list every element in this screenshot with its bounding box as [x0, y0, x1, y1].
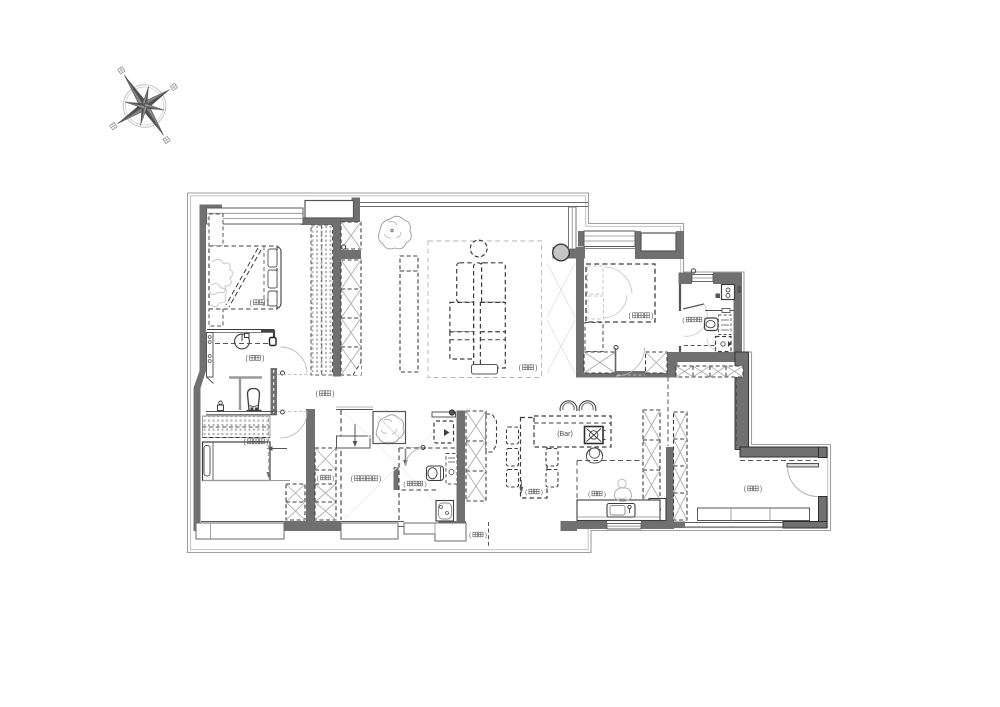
svg-text:): ) — [703, 317, 705, 324]
svg-text:): ) — [266, 298, 268, 307]
svg-text:): ) — [379, 474, 381, 483]
svg-text:): ) — [332, 389, 334, 398]
svg-text:): ) — [485, 532, 487, 539]
svg-text:): ) — [262, 354, 264, 363]
svg-text:): ) — [541, 489, 543, 496]
svg-text:): ) — [332, 475, 334, 482]
svg-text:): ) — [604, 491, 606, 498]
svg-text:): ) — [424, 481, 426, 488]
svg-text:): ) — [760, 486, 762, 493]
svg-text:(Bar): (Bar) — [557, 431, 573, 438]
svg-text:): ) — [651, 311, 653, 320]
svg-text:): ) — [535, 363, 537, 372]
